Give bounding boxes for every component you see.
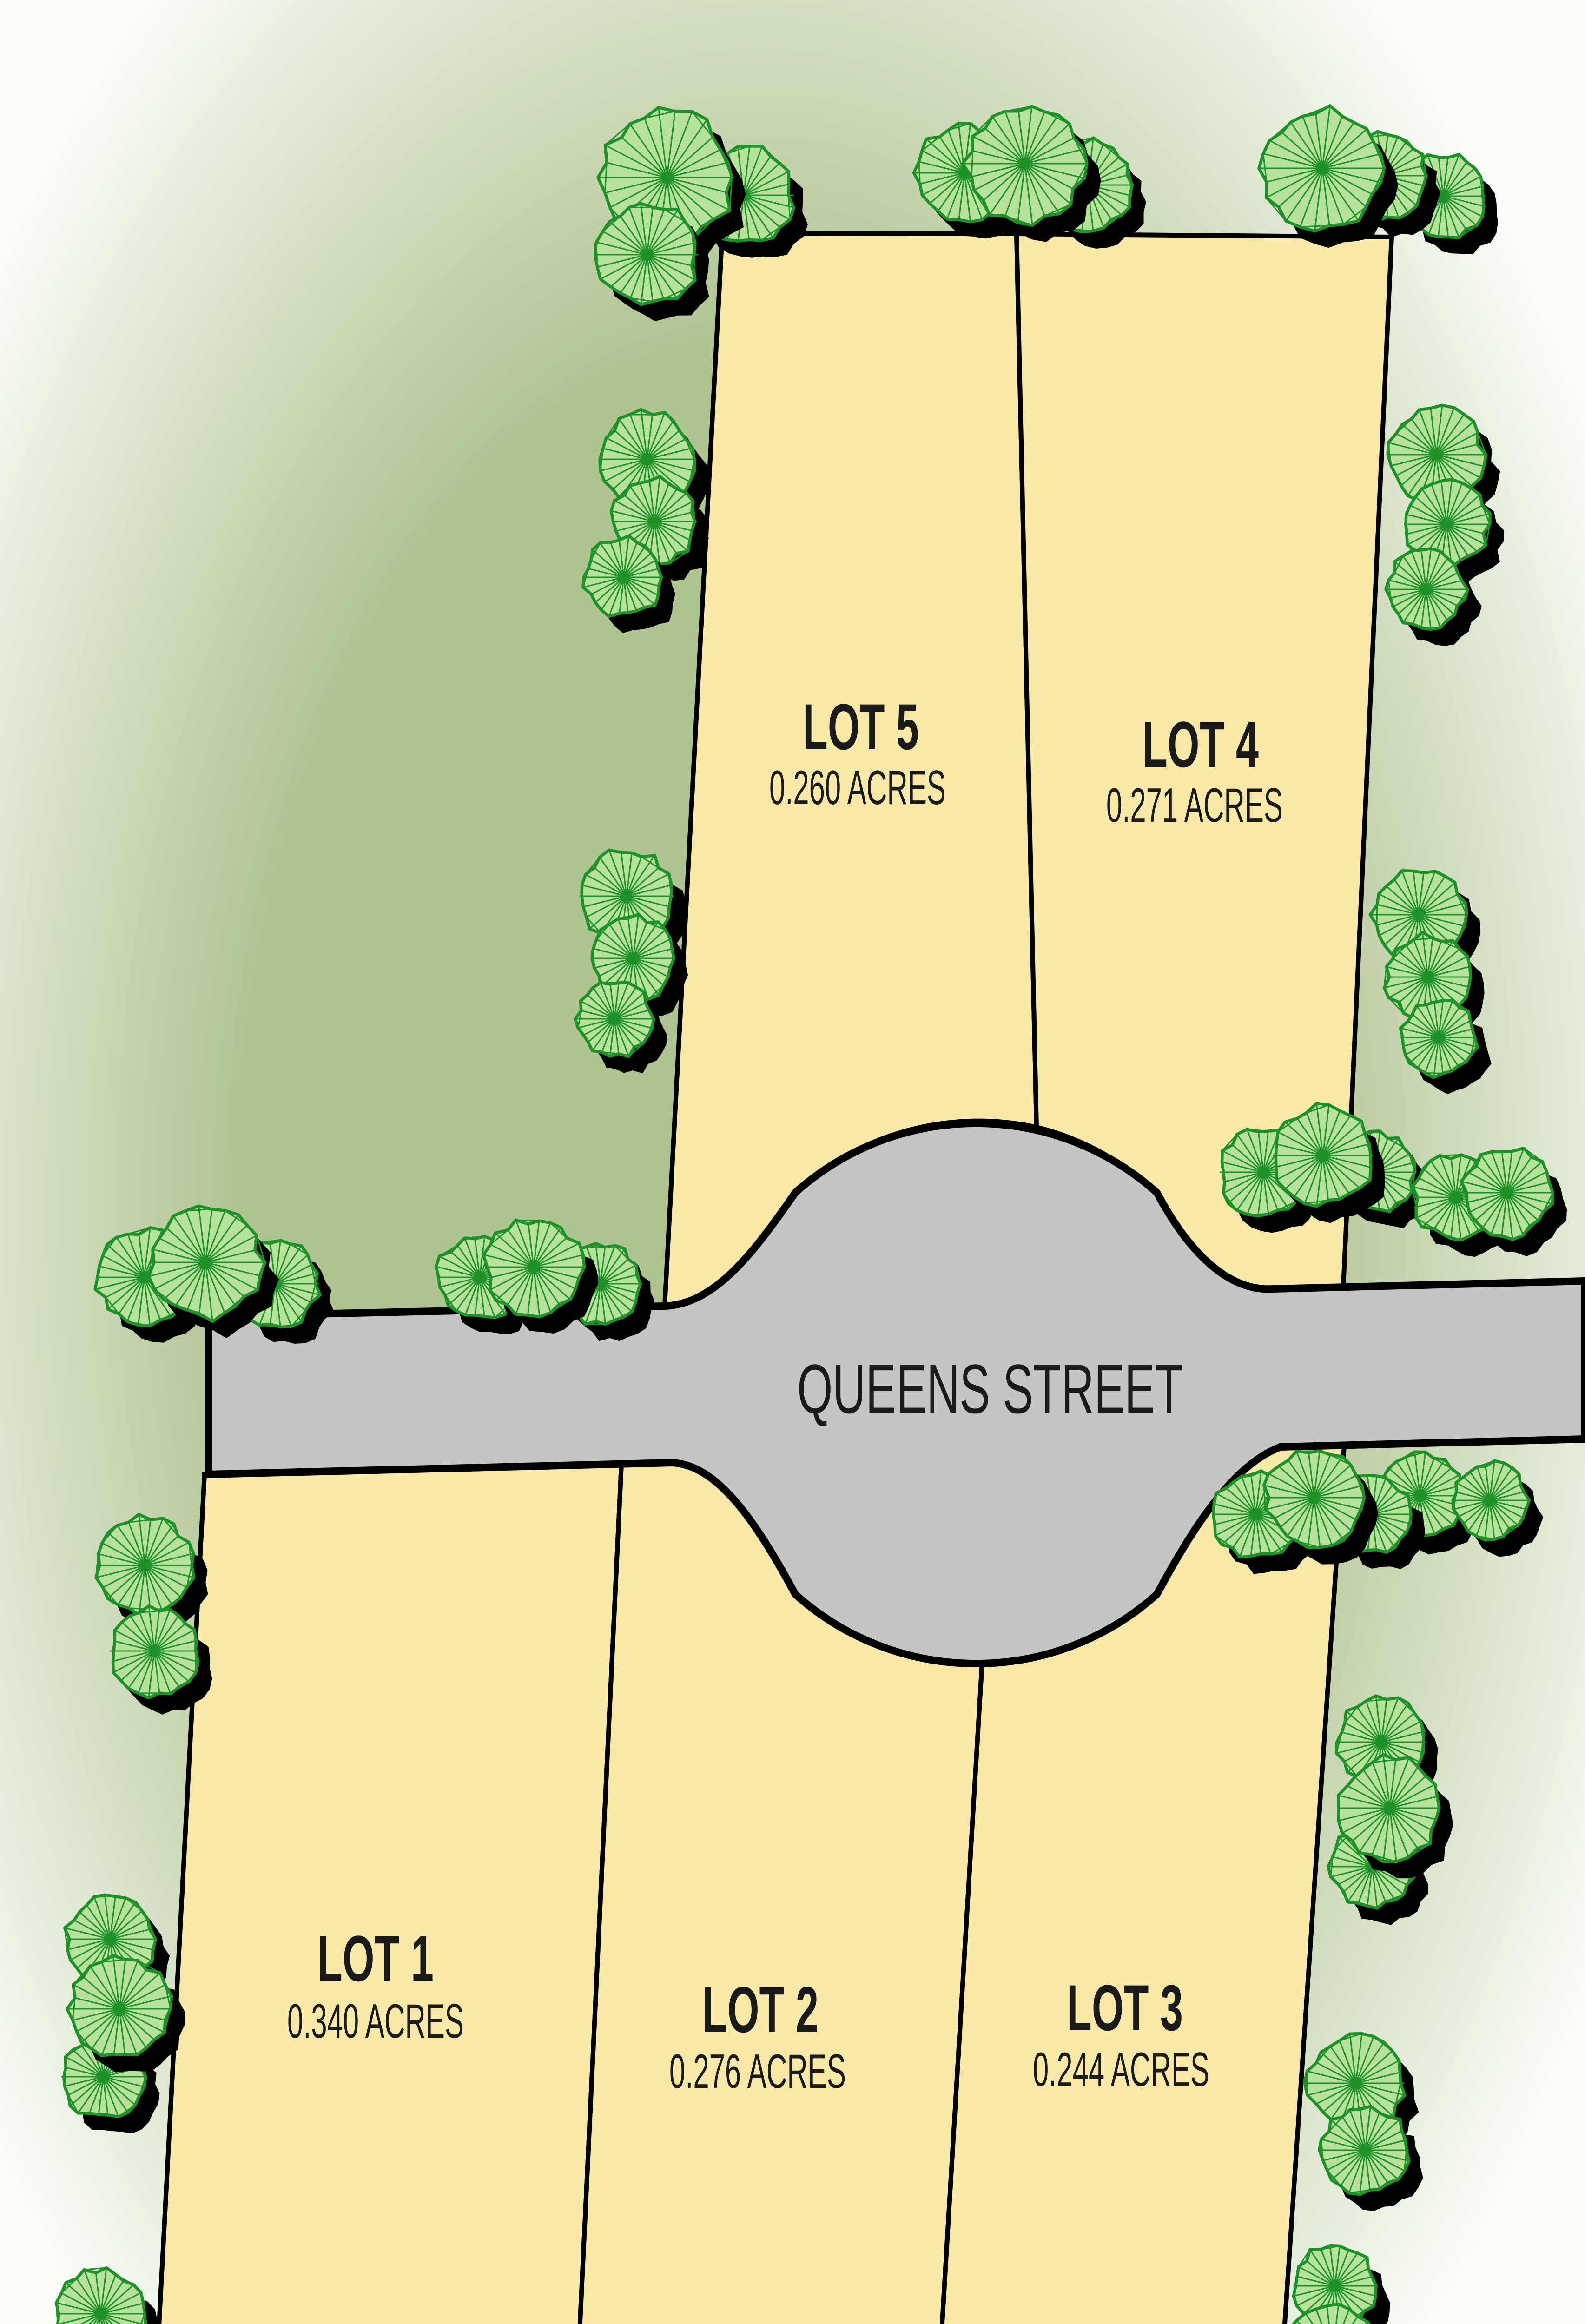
lot-1-parcel bbox=[150, 1464, 621, 2324]
lot-5-acres-label: 0.260 ACRES bbox=[769, 761, 946, 815]
lot-5-name-label: LOT 5 bbox=[803, 690, 919, 763]
lot-2-acres-label: 0.276 ACRES bbox=[669, 2045, 846, 2099]
lot-4-name-label: LOT 4 bbox=[1143, 708, 1259, 781]
lot-3-acres-label: 0.244 ACRES bbox=[1033, 2043, 1209, 2097]
lot-4-acres-label: 0.271 ACRES bbox=[1106, 779, 1283, 832]
lot-3-name-label: LOT 3 bbox=[1067, 1971, 1183, 2044]
site-plan: QUEENS STREET LOT 5 0.260 ACRES LOT 4 0.… bbox=[0, 0, 1585, 2324]
lot-1-name-label: LOT 1 bbox=[317, 1922, 434, 1995]
street-name-label: QUEENS STREET bbox=[797, 1350, 1183, 1428]
lot-2-name-label: LOT 2 bbox=[702, 1973, 819, 2046]
site-plan-svg: QUEENS STREET LOT 5 0.260 ACRES LOT 4 0.… bbox=[0, 0, 1585, 2324]
lot-1-acres-label: 0.340 ACRES bbox=[287, 1994, 464, 2048]
